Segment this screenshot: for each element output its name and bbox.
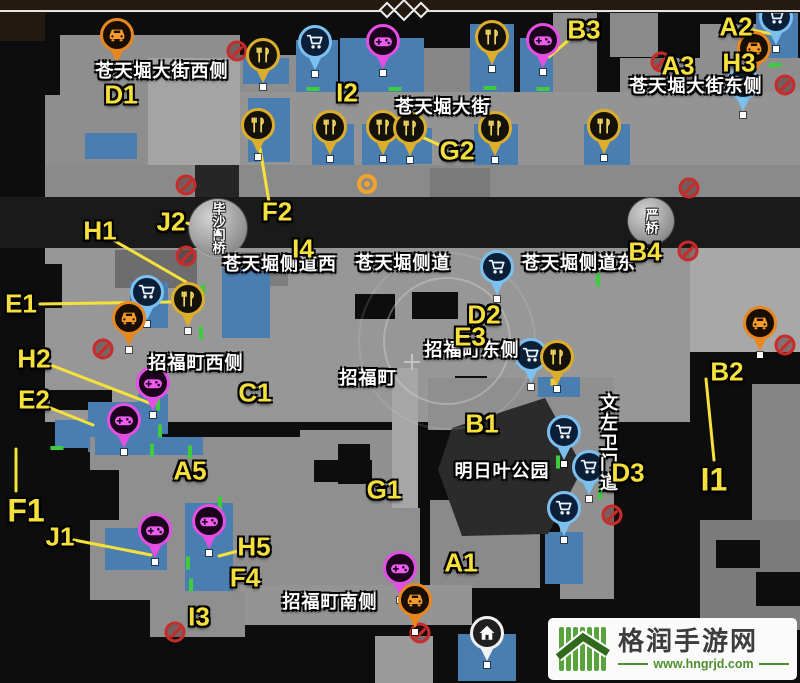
city-block [375,636,433,683]
door-mark [51,446,64,450]
map-label-f1: F1 [7,493,44,530]
map-label-i2: I2 [336,78,358,109]
watermark: 格润手游网 www.hngrjd.com [548,618,797,680]
door-mark [158,425,162,438]
pin-dot [260,84,266,90]
taxi-glyph [108,26,126,44]
map-label-b4: B4 [628,237,661,268]
diamond-icon [413,2,430,19]
pin-dot [380,156,386,162]
cart-glyph [488,258,506,276]
no-entry-icon [679,178,700,199]
bridge-marker: 毕沙门桥▲ [189,199,247,257]
map-label-f4: F4 [230,563,260,594]
pin-dot [121,449,127,455]
cart-glyph [306,33,324,51]
map-label-h2: H2 [17,344,50,375]
door-mark [769,63,782,67]
pin-dot [554,386,560,392]
pin-dot [312,71,318,77]
gamepad-glyph [533,32,553,49]
city-block [412,292,458,319]
cart-glyph [138,283,156,301]
door-mark [186,557,190,570]
pin-dot [255,154,261,160]
fork-knife-glyph [486,119,504,137]
map-label-g1: G1 [367,475,402,506]
no-entry-icon [93,339,114,360]
map-label-i1: I1 [701,462,728,499]
pin-dot [528,384,534,390]
cart-icon [298,25,332,59]
bridge-name: 严桥 [644,208,657,234]
no-entry-icon [678,241,699,262]
fork-knife-glyph [321,118,339,136]
city-block [222,268,270,338]
fork-knife-glyph [254,46,272,64]
quest-ring-icon [357,174,377,194]
map-label-h3: H3 [722,48,755,79]
door-mark [537,87,550,91]
pin-dot [586,496,592,502]
fork-knife-glyph [179,290,197,308]
food-icon [313,110,347,144]
city-block [0,197,800,248]
cart-glyph [555,499,573,517]
city-block [314,460,372,482]
street-label: 招福町 [340,364,397,390]
city-block [756,572,800,606]
divider [618,663,648,665]
food-icon [246,38,280,72]
cart-icon [547,491,581,525]
door-mark [389,87,402,91]
door-mark [150,444,154,457]
taxi-icon [398,583,432,617]
city-block [430,168,490,198]
game-icon [366,24,400,58]
map-label-b1: B1 [465,409,498,440]
home-icon [470,616,504,650]
taxi-glyph [406,591,424,609]
divider [759,663,789,665]
city-block [355,294,395,319]
pin-dot [601,155,607,161]
city-block [610,13,658,57]
pin-dot [489,66,495,72]
food-icon [241,108,275,142]
gamepad-glyph [114,412,134,429]
no-entry-icon [775,335,796,356]
site-name: 格润手游网 [618,627,789,657]
cart-glyph [555,423,573,441]
fork-knife-glyph [548,348,566,366]
no-entry-icon [176,175,197,196]
city-block [95,437,203,455]
pin-dot [561,537,567,543]
map-label-j2: J2 [157,207,186,238]
fork-knife-glyph [483,28,501,46]
city-block [87,470,119,520]
city-block [752,384,800,520]
street-label: 苍天堀侧道西 [223,250,337,276]
map-label-e2: E2 [18,385,50,416]
map-label-g2: G2 [440,136,475,167]
no-entry-icon [775,75,796,96]
taxi-icon [112,301,146,335]
game-icon [192,504,226,538]
pin-dot [407,157,413,163]
door-mark [307,87,320,91]
map-label-b2: B2 [710,357,743,388]
pin-dot [492,157,498,163]
street-label: 招福町南侧 [283,588,378,614]
map-label-a5: A5 [173,456,206,487]
game-icon [138,513,172,547]
gamepad-glyph [145,522,165,539]
pin-dot [757,352,763,358]
pin-dot [150,412,156,418]
game-icon [526,23,560,57]
game-icon [107,403,141,437]
door-mark [189,579,193,592]
map-label-c1: C1 [238,378,271,409]
gamepad-glyph [199,513,219,530]
city-block [640,424,702,458]
food-icon [540,340,574,374]
door-mark [484,86,497,90]
game-map: 格润手游网 www.hngrjd.com D1I2G2B3A2A3H3B4F2J… [0,0,800,683]
street-label: 苍天堀侧道 [356,249,451,275]
fork-knife-glyph [249,116,267,134]
home-glyph [478,624,496,642]
map-label-f2: F2 [262,197,292,228]
fork-knife-glyph [374,118,392,136]
fork-knife-glyph [401,119,419,137]
pin-dot [740,112,746,118]
city-block [668,458,702,488]
pin-dot [412,629,418,635]
taxi-icon [100,18,134,52]
pin-dot [327,156,333,162]
pin-dot [540,69,546,75]
diamond-icon [393,0,416,21]
door-mark [596,274,600,287]
site-url: www.hngrjd.com [653,657,753,671]
taxi-icon [743,306,777,340]
city-block [85,133,137,159]
street-label: 招福町西侧 [149,349,244,375]
street-label: 苍天堀侧道东 [522,249,636,275]
map-label-a3: A3 [661,51,694,82]
city-block [716,540,760,568]
site-logo-icon [556,625,610,673]
pin-dot [126,347,132,353]
map-label-j1: J1 [46,522,75,553]
no-entry-icon [602,505,623,526]
city-block [0,13,45,41]
map-label-h1: H1 [83,216,116,247]
cart-icon [547,415,581,449]
pin-dot [380,70,386,76]
street-label: 苍天堀大街 [396,93,491,119]
food-icon [171,282,205,316]
cart-icon [480,250,514,284]
cart-glyph [522,346,540,364]
pin-dot [773,46,779,52]
street-label: 明日叶公园 [455,457,550,483]
map-label-a2: A2 [719,12,752,43]
gamepad-glyph [143,375,163,392]
taxi-glyph [120,309,138,327]
taxi-glyph [751,314,769,332]
city-block [45,95,63,165]
map-label-e1: E1 [5,289,37,320]
map-label-d3: D3 [611,458,644,489]
game-icon [383,551,417,585]
no-entry-icon [165,622,186,643]
player-arrow-icon: ▲ [211,223,225,239]
map-label-d1: D1 [104,80,137,111]
map-label-b3: B3 [567,15,600,46]
pin-dot [561,461,567,467]
gamepad-glyph [373,33,393,50]
no-entry-icon [176,246,197,267]
gamepad-glyph [390,560,410,577]
map-label-a1: A1 [444,548,477,579]
city-block [195,165,239,198]
no-entry-icon [227,41,248,62]
map-label-h5: H5 [237,532,270,563]
fork-knife-glyph [595,117,613,135]
pin-dot [152,559,158,565]
pin-dot [185,328,191,334]
pin-dot [484,662,490,668]
door-mark [199,327,203,340]
map-label-i4: I4 [292,234,314,265]
border-ornament-icon [381,1,427,19]
food-icon [587,109,621,143]
map-label-e3: E3 [454,322,486,353]
pin-dot [206,550,212,556]
map-label-i3: I3 [188,602,210,633]
food-icon [475,20,509,54]
